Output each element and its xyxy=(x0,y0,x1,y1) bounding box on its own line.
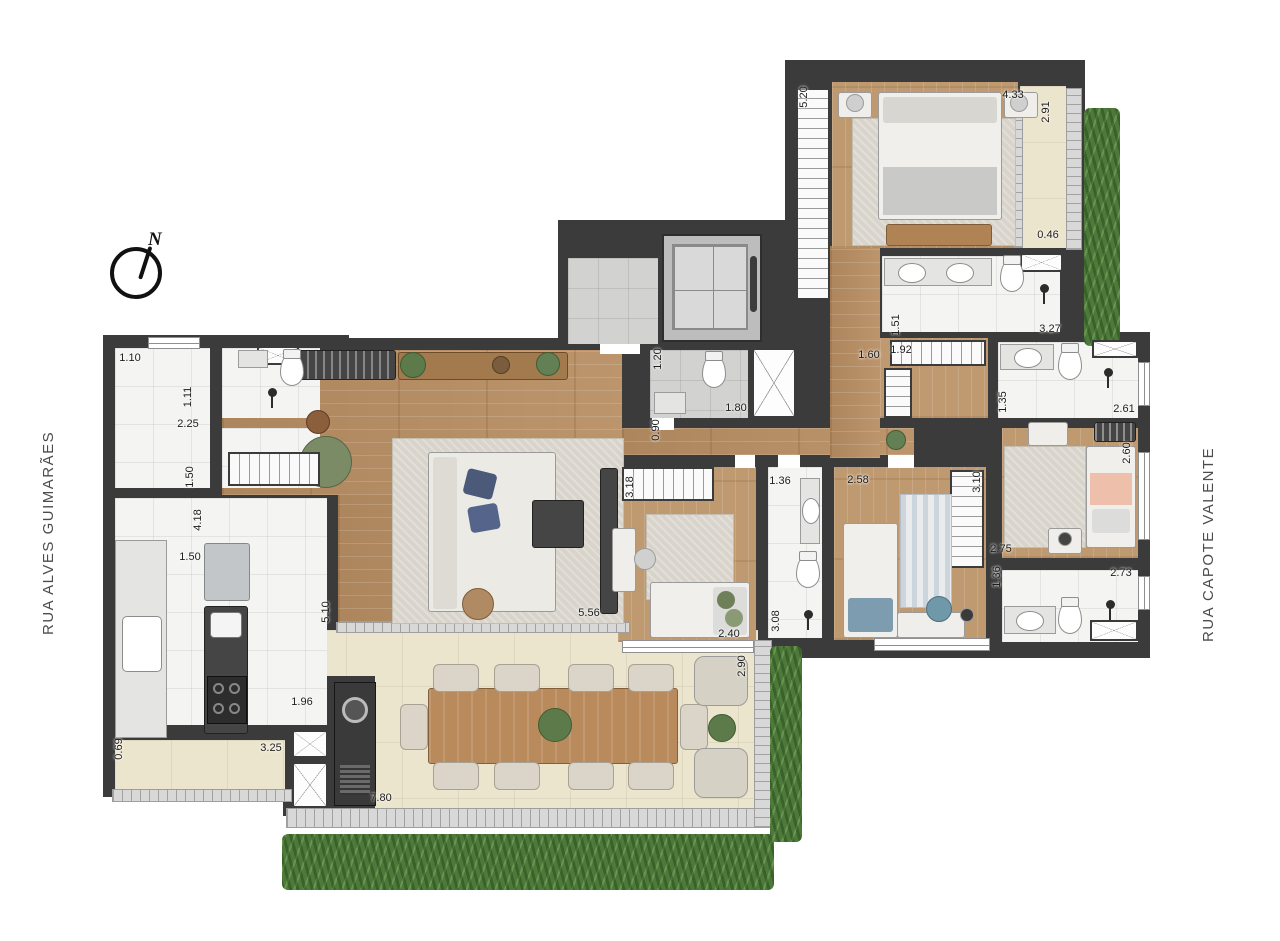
shower-icon xyxy=(1104,368,1113,377)
dimension-label: 1.96 xyxy=(291,696,312,708)
plant-icon xyxy=(400,352,426,378)
decor-bowl xyxy=(492,356,510,374)
toilet-icon xyxy=(1000,258,1024,292)
side-table xyxy=(306,410,330,434)
griddle-icon xyxy=(340,765,370,795)
lamp-icon xyxy=(960,608,974,622)
closet-rod xyxy=(884,368,912,418)
service-balcony-railing xyxy=(112,789,292,802)
dining-chair xyxy=(568,762,614,790)
entry-door-gap xyxy=(600,344,640,354)
toilet-icon xyxy=(702,354,726,388)
dimension-label: 5.20 xyxy=(798,86,810,107)
dining-chair xyxy=(494,664,540,692)
dining-chair xyxy=(628,762,674,790)
burner-icon xyxy=(229,683,240,694)
grass-hedge-terrace-right xyxy=(770,646,802,842)
shower-icon xyxy=(1106,600,1115,609)
lamp-icon xyxy=(1058,532,1072,546)
elevator-cab xyxy=(662,234,762,342)
toilet-icon xyxy=(796,554,820,588)
lounge-armchair xyxy=(694,748,748,798)
bed-bench xyxy=(886,224,992,246)
street-label-right: RUA CAPOTE VALENTE xyxy=(1200,452,1217,642)
dimension-label: 5.10 xyxy=(320,601,332,622)
terrace-railing-bottom xyxy=(286,808,774,828)
dining-chair xyxy=(433,762,479,790)
dimension-label: 1.36 xyxy=(769,475,790,487)
elevator-handle-icon xyxy=(750,256,757,312)
sink-icon xyxy=(1014,348,1042,368)
dimension-label: 4.18 xyxy=(192,509,204,530)
bedroom3-door-gap xyxy=(888,455,914,468)
dimension-label: 1.50 xyxy=(184,466,196,487)
master-balcony-railing xyxy=(1066,88,1082,250)
kitchen-sink xyxy=(122,616,162,672)
bed-pillows-blue xyxy=(848,598,893,632)
dimension-label: 4.33 xyxy=(1002,89,1023,101)
pillow-blue xyxy=(462,468,497,500)
coffee-table xyxy=(532,500,584,548)
dimension-label: 1.60 xyxy=(858,349,879,361)
dining-chair xyxy=(400,704,428,750)
shaft-terrace-1 xyxy=(292,730,328,758)
dimension-label: 2.61 xyxy=(1113,403,1134,415)
shaft-bathroom3 xyxy=(1092,340,1138,358)
grass-hedge-bottom xyxy=(282,834,774,890)
table-plant-icon xyxy=(538,708,572,742)
dimension-label: 1.36 xyxy=(991,566,1003,587)
master-wardrobe xyxy=(796,88,830,300)
toilet-icon xyxy=(280,352,304,386)
bed-pillows xyxy=(1092,509,1130,533)
bookshelf xyxy=(298,350,396,380)
bedroom2-door-gap xyxy=(735,455,755,468)
lamp-icon xyxy=(846,94,864,112)
dining-chair xyxy=(680,704,708,750)
shower-icon xyxy=(1040,284,1049,293)
bathroom2-door-gap xyxy=(778,455,800,468)
shaft-hall xyxy=(752,348,796,418)
pillow-green xyxy=(717,591,735,609)
dimension-label: 1.50 xyxy=(179,551,200,563)
dimension-label: 2.25 xyxy=(177,418,198,430)
grill-icon xyxy=(342,697,368,723)
dimension-label: 1.80 xyxy=(725,402,746,414)
bed-blanket xyxy=(883,167,997,215)
shower-icon xyxy=(804,610,813,619)
dining-chair xyxy=(433,664,479,692)
bed-blanket-salmon xyxy=(1090,473,1132,505)
dimension-label: 1.11 xyxy=(182,387,194,408)
sink-icon xyxy=(898,263,926,283)
bedroom3-rug xyxy=(900,494,952,608)
desk xyxy=(1028,422,1068,446)
compass-needle xyxy=(138,246,152,280)
bathroom3-window xyxy=(1138,362,1150,406)
bathroom4-window xyxy=(1138,576,1150,610)
dimension-label: 3.27 xyxy=(1039,323,1060,335)
plant-icon xyxy=(708,714,736,742)
dimension-label: 2.91 xyxy=(1040,101,1052,122)
shaft-terrace-2 xyxy=(292,762,328,808)
north-label: N xyxy=(148,229,162,251)
dimension-label: 3.25 xyxy=(260,742,281,754)
sofa-back-cushion xyxy=(433,457,457,609)
burner-icon xyxy=(213,683,224,694)
dimension-label: 0.46 xyxy=(1037,229,1058,241)
burner-icon xyxy=(213,703,224,714)
dining-chair xyxy=(494,762,540,790)
bed-single xyxy=(843,523,898,638)
bbq-counter xyxy=(334,682,376,806)
desk xyxy=(612,528,636,592)
shaft-master-bath xyxy=(1020,253,1063,272)
laundry-window xyxy=(148,337,200,349)
street-label-left: RUA ALVES GUIMARÃES xyxy=(40,455,57,635)
bedroom4-window xyxy=(1138,452,1150,540)
burner-icon xyxy=(229,703,240,714)
bed-pillows xyxy=(883,97,997,123)
dimension-label: 0.69 xyxy=(113,738,125,759)
shower-icon xyxy=(268,388,277,397)
dimension-label: 2.58 xyxy=(847,474,868,486)
master-bed xyxy=(878,92,1002,220)
dimension-label: 0.90 xyxy=(650,419,662,440)
sink-icon xyxy=(802,498,820,524)
plant-icon xyxy=(886,430,906,450)
dimension-label: 5.56 xyxy=(578,607,599,619)
powder-sink-counter xyxy=(654,392,686,414)
service-bath-sink-counter xyxy=(238,350,268,368)
dimension-label: 7.80 xyxy=(370,792,391,804)
dimension-label: 2.73 xyxy=(1110,567,1131,579)
dimension-label: 1.10 xyxy=(119,352,140,364)
dimension-label: 3.10 xyxy=(971,471,983,492)
dimension-label: 2.75 xyxy=(990,543,1011,555)
elevator-hall-floor xyxy=(568,258,658,344)
book-shelf xyxy=(1094,422,1136,442)
dimension-label: 3.08 xyxy=(770,610,782,631)
dimension-label: 1.35 xyxy=(997,391,1009,412)
sink-icon xyxy=(946,263,974,283)
plant-icon xyxy=(536,352,560,376)
desk-chair xyxy=(634,548,656,570)
dimension-label: 2.60 xyxy=(1121,442,1133,463)
pouf xyxy=(462,588,494,620)
bedroom2-window-sill xyxy=(622,640,754,653)
refrigerator xyxy=(204,543,250,601)
sink-icon xyxy=(1016,611,1044,631)
toilet-icon xyxy=(1058,346,1082,380)
pillow-blue xyxy=(467,503,501,534)
toilet-icon xyxy=(1058,600,1082,634)
grass-hedge-top-right xyxy=(1084,108,1120,346)
north-compass-icon: N xyxy=(110,247,162,299)
bedroom3-window-sill xyxy=(874,638,990,651)
shaft-bathroom4 xyxy=(1090,620,1138,641)
island-sink xyxy=(210,612,242,638)
dimension-label: 1.51 xyxy=(890,314,902,335)
floor-plan-canvas: RUA ALVES GUIMARÃES RUA CAPOTE VALENTE N xyxy=(0,0,1280,941)
dimension-label: 2.40 xyxy=(718,628,739,640)
dimension-label: 1.92 xyxy=(890,344,911,356)
dimension-label: 2.90 xyxy=(736,655,748,676)
stove-icon xyxy=(207,676,247,724)
elevator-door-icon xyxy=(672,244,748,330)
dimension-label: 3.18 xyxy=(624,476,636,497)
desk-chair-teal xyxy=(926,596,952,622)
pillow-green xyxy=(725,609,743,627)
dining-chair xyxy=(568,664,614,692)
dimension-label: 1.20 xyxy=(652,348,664,369)
service-closet-shelf xyxy=(228,452,320,486)
dining-chair xyxy=(628,664,674,692)
